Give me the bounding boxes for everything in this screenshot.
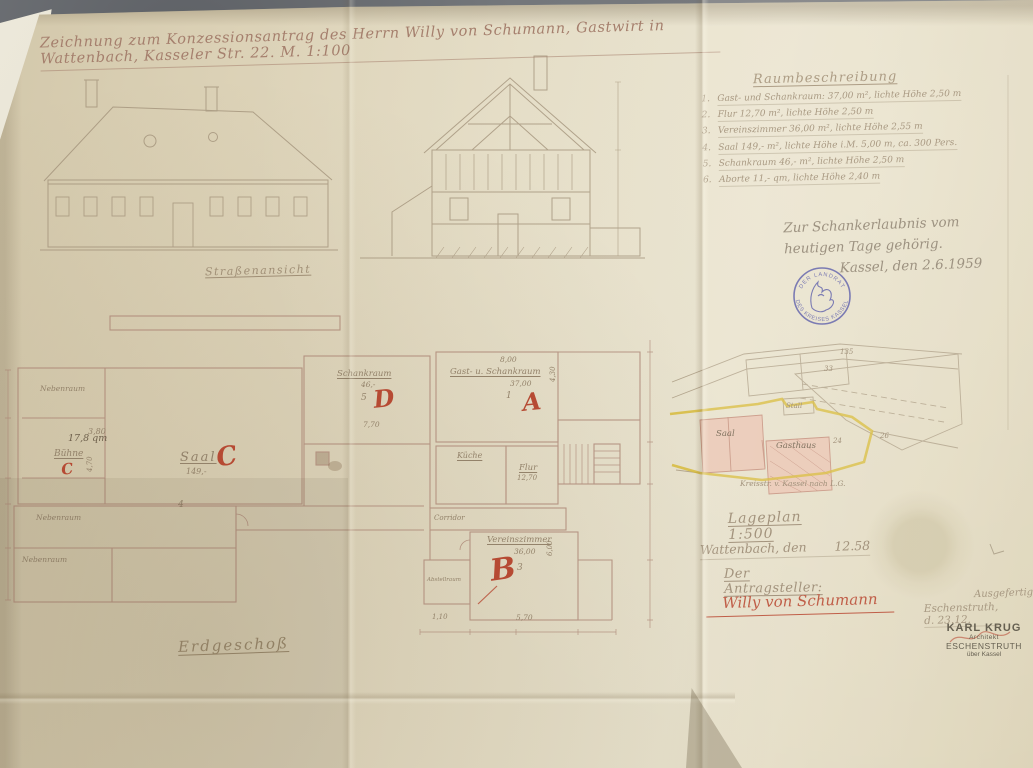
elevation-caption: Straßenansicht <box>205 263 311 279</box>
approval-note: Zur Schankerlaubnis vom heutigen Tage ge… <box>783 210 1033 281</box>
room-item-text: Vereinszimmer 36,00 m², lichte Höhe 2,55… <box>718 122 923 138</box>
architect-name: KARL KRUG <box>934 622 1033 634</box>
architect-stamp: KARL KRUG Architekt ESCHENSTRUTH über Ka… <box>934 622 1033 658</box>
room-item-number: 2. <box>702 110 718 122</box>
room-description-item-5: 5.Schankraum 46,- m², lichte Höhe 2,50 m <box>703 152 1021 171</box>
photo-of-blueprint: DER LANDRAT DES KREISES KASSEL Zeichnung… <box>0 0 1033 768</box>
room-item-text: Aborte 11,- qm, lichte Höhe 2,40 m <box>719 172 880 187</box>
execution-note: Ausgefertigt <box>974 587 1033 600</box>
room-description-list: 1.Gast- und Schankraum: 37,00 m², lichte… <box>701 88 1021 188</box>
room-item-number: 3. <box>702 126 718 138</box>
room-description-item-4: 4.Saal 149,- m², lichte Höhe i.M. 5,00 m… <box>702 136 1020 155</box>
applicant-signature: Willy von Schumann <box>706 590 895 618</box>
room-description-item-1: 1.Gast- und Schankraum: 37,00 m², lichte… <box>701 88 1019 107</box>
room-item-number: 1. <box>701 94 717 106</box>
room-description-item-2: 2.Flur 12,70 m², lichte Höhe 2,50 m <box>702 104 1020 123</box>
lageplan-scale-note: Lageplan 1:500 <box>728 509 803 543</box>
room-item-text: Flur 12,70 m², lichte Höhe 2,50 m <box>718 107 874 122</box>
architect-place: ESCHENSTRUTH <box>934 641 1033 651</box>
floor-plan-caption: Erdgeschoß <box>178 634 290 656</box>
architect-sub: über Kassel <box>934 651 1033 658</box>
room-description-block: Raumbeschreibung 1.Gast- und Schankraum:… <box>701 67 1021 192</box>
architect-role: Architekt <box>934 634 1033 641</box>
room-description-item-6: 6.Aborte 11,- qm, lichte Höhe 2,40 m <box>703 169 1021 188</box>
room-item-number: 6. <box>703 175 719 187</box>
room-item-text: Schankraum 46,- m², lichte Höhe 2,50 m <box>719 155 905 171</box>
room-item-number: 5. <box>703 159 719 171</box>
room-item-number: 4. <box>702 143 718 155</box>
room-item-text: Gast- und Schankraum: 37,00 m², lichte H… <box>717 89 961 106</box>
room-description-item-3: 3.Vereinszimmer 36,00 m², lichte Höhe 2,… <box>702 120 1020 139</box>
room-item-text: Saal 149,- m², lichte Höhe i.M. 5,00 m, … <box>718 138 957 155</box>
